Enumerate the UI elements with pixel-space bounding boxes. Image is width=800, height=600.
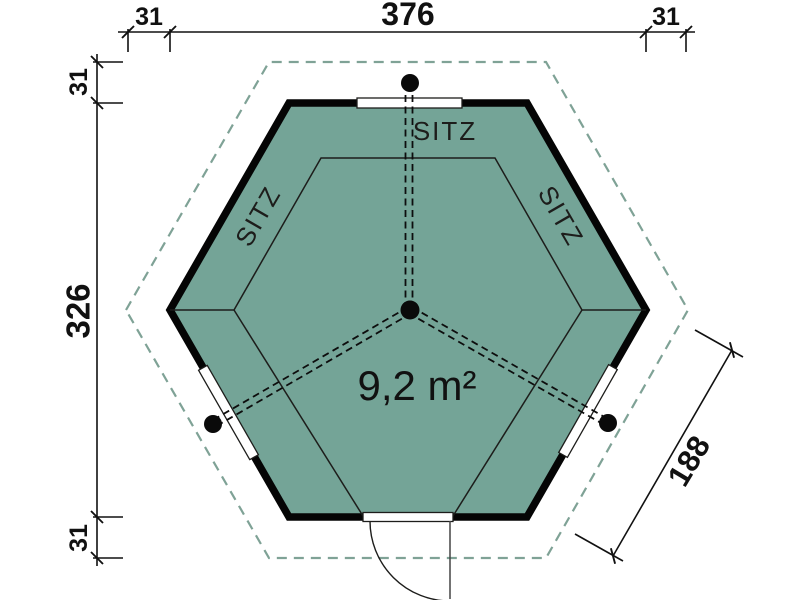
dimension-left-top-overhang: 31	[65, 68, 93, 96]
post-marker-top	[401, 74, 419, 92]
post-marker-center	[401, 301, 420, 320]
area-label: 9,2 m²	[357, 362, 476, 409]
post-marker-left	[204, 415, 222, 433]
seat-label-top: SITZ	[413, 116, 477, 146]
dimension-left-bottom-overhang: 31	[65, 524, 93, 552]
dimension-left-total: 326	[60, 283, 97, 338]
floor-plan-drawing: SITZ SITZ SITZ 9,2 m² 31 376 31 31	[0, 0, 800, 600]
post-marker-right	[599, 414, 617, 432]
dimension-top-left-overhang: 31	[135, 3, 163, 31]
floor-plan-canvas: SITZ SITZ SITZ 9,2 m² 31 376 31 31	[0, 0, 800, 600]
window-top-frame	[357, 98, 462, 108]
dimension-top-right-overhang: 31	[652, 3, 680, 31]
window-top	[357, 98, 462, 108]
dimension-top-total: 376	[381, 0, 434, 32]
door-opening	[363, 513, 453, 522]
